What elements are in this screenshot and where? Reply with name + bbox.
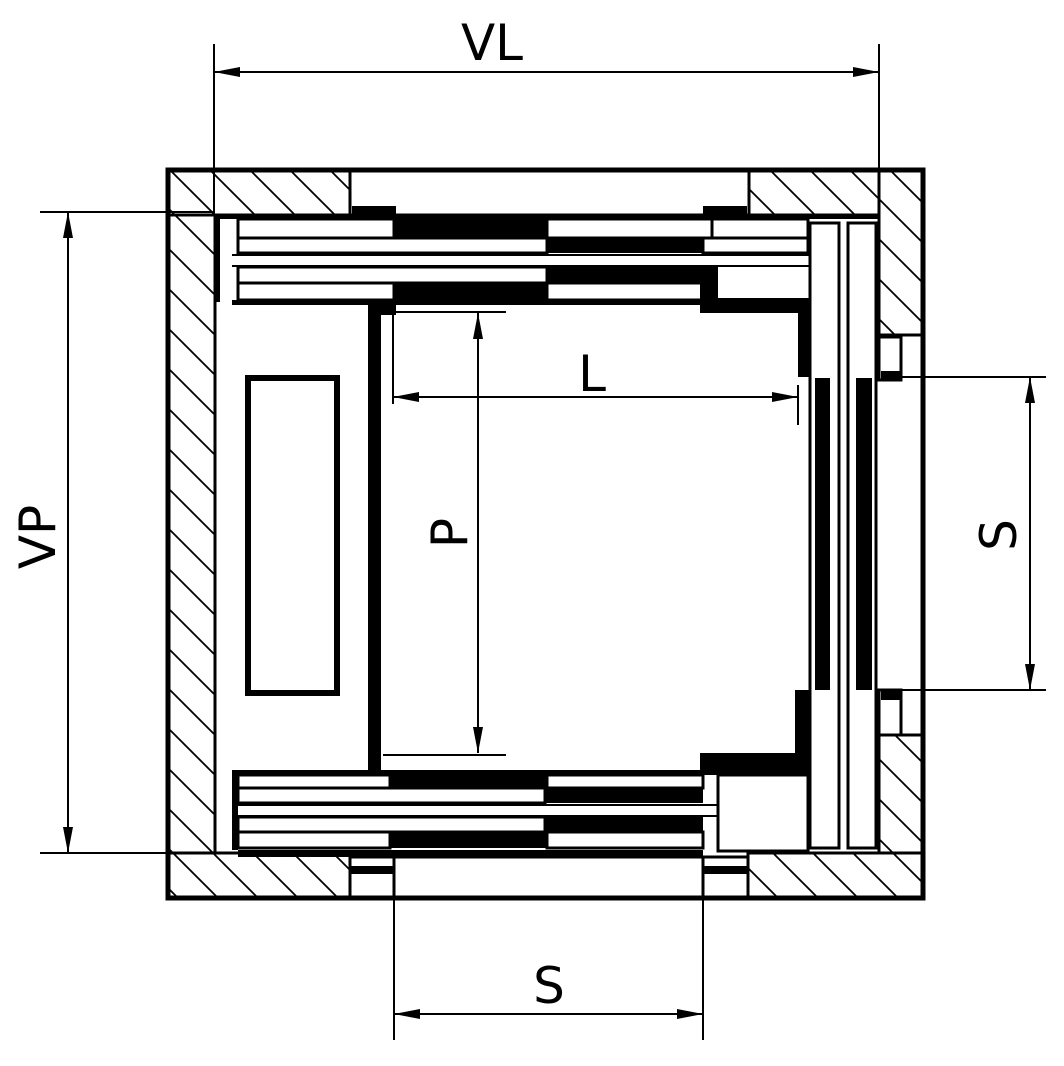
s-bottom-arrow-right (677, 1009, 703, 1019)
door-panel (238, 817, 545, 832)
door-panel (238, 238, 547, 253)
door-panel-section (545, 817, 703, 832)
door-panel (712, 219, 808, 238)
vl-arrow-left (214, 67, 240, 77)
shaft-wall-bottom-left (168, 853, 350, 898)
bottom-door-sill (394, 857, 703, 898)
vp-arrow-bottom (63, 827, 73, 853)
dimension-s-right: S (886, 377, 1046, 690)
p-arrow-top (473, 313, 483, 339)
door-panel (238, 788, 545, 803)
label-door-opening-right: S (970, 519, 1028, 551)
shaft-wall-top-left (168, 170, 350, 215)
dimension-s-bottom: S (394, 898, 703, 1040)
bottom-door-jamb-right-strike (703, 866, 748, 874)
bottom-door-jamb-right (703, 857, 748, 898)
door-panel (238, 267, 547, 283)
door-panel-section (545, 788, 703, 803)
label-car-depth: P (421, 518, 479, 548)
car-wall-top-cap (232, 300, 703, 305)
door-panel-section (394, 219, 547, 238)
l-arrow-right (772, 392, 798, 402)
shaft-wall-right-upper (879, 170, 923, 335)
label-door-opening-bottom: S (533, 957, 565, 1015)
door-pocket-block (718, 775, 808, 851)
s-right-arrow-top (1025, 377, 1035, 403)
top-assembly-left-cap (216, 219, 220, 302)
door-panel (547, 283, 703, 300)
top-door-jamb-left (352, 206, 396, 216)
bottom-door-jamb-left-strike (350, 866, 394, 874)
vp-arrow-top (63, 212, 73, 238)
shaft-wall-bottom-right (748, 853, 923, 898)
door-panel (238, 832, 390, 848)
right-door-jamb-top-strike (881, 371, 901, 381)
label-shaft-width: VL (461, 14, 523, 72)
vl-arrow-right (853, 67, 879, 77)
door-panel-section (394, 283, 547, 300)
p-arrow-bottom (473, 727, 483, 753)
door-panel-section (856, 378, 872, 690)
top-door-lintel (350, 170, 749, 215)
door-panel (238, 283, 394, 300)
door-panel-section (390, 832, 547, 848)
right-door-jamb-bottom-strike (881, 690, 901, 700)
car-wall-left (368, 300, 381, 770)
car-wall-top-right (700, 298, 800, 313)
door-panel (238, 219, 394, 238)
counterweight (248, 378, 337, 693)
bottom-door-jamb-left (350, 857, 394, 898)
door-panel-section (815, 378, 830, 690)
door-panel (547, 219, 712, 238)
right-door-assembly (810, 223, 876, 848)
door-panel-section (390, 775, 547, 788)
s-bottom-arrow-left (394, 1009, 420, 1019)
top-door-assembly (216, 215, 879, 302)
bottom-door-assembly (232, 770, 810, 851)
door-panel (238, 775, 390, 788)
label-shaft-depth: VP (9, 505, 67, 569)
top-door-jamb-right (703, 206, 747, 216)
dimension-l: L (393, 312, 798, 425)
shaft-wall-top-right (749, 170, 879, 215)
label-car-width: L (578, 345, 606, 403)
shaft-wall-left (168, 170, 215, 853)
l-arrow-left (393, 392, 419, 402)
door-guide-channel (232, 255, 820, 266)
elevator-plan-drawing: VL VP L P S S (0, 0, 1064, 1066)
door-panel (547, 832, 703, 848)
door-panel-section (547, 238, 703, 253)
dimension-p: P (383, 312, 506, 755)
door-panel (547, 775, 703, 788)
door-panel (703, 238, 808, 253)
car-wall-bottom-cap (238, 850, 703, 857)
s-right-arrow-bottom (1025, 664, 1035, 690)
technical-drawing-canvas: VL VP L P S S (0, 0, 1064, 1066)
